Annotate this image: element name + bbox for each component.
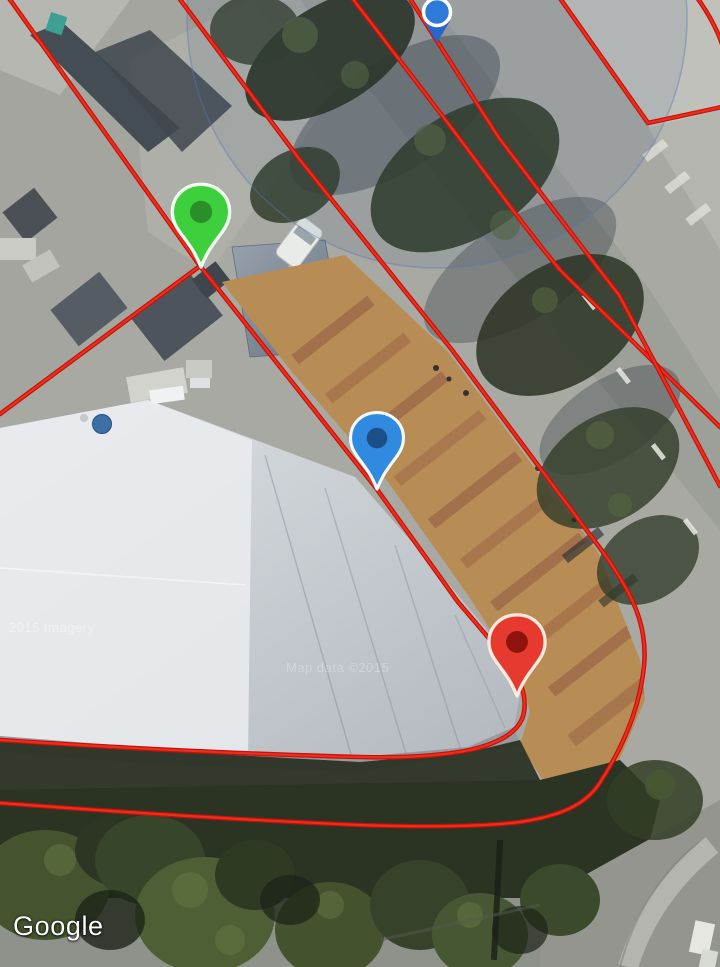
parcel-edge-southwest-core bbox=[0, 266, 200, 414]
green-map-pin[interactable] bbox=[172, 184, 229, 267]
red-map-pin-inner-dot bbox=[506, 631, 528, 653]
google-logo[interactable]: Google bbox=[13, 911, 104, 942]
top-right-corner-line-core bbox=[696, 0, 720, 44]
red-map-pin[interactable] bbox=[489, 615, 545, 696]
map-viewport[interactable]: 2015 Imagery Map data ©2015 Google bbox=[0, 0, 720, 967]
green-map-pin-inner-dot bbox=[190, 201, 212, 223]
map-overlay bbox=[0, 0, 720, 967]
blue-map-pin-inner-dot bbox=[367, 428, 388, 449]
top-right-corner-line bbox=[696, 0, 720, 44]
blue-map-pin[interactable] bbox=[351, 413, 404, 489]
